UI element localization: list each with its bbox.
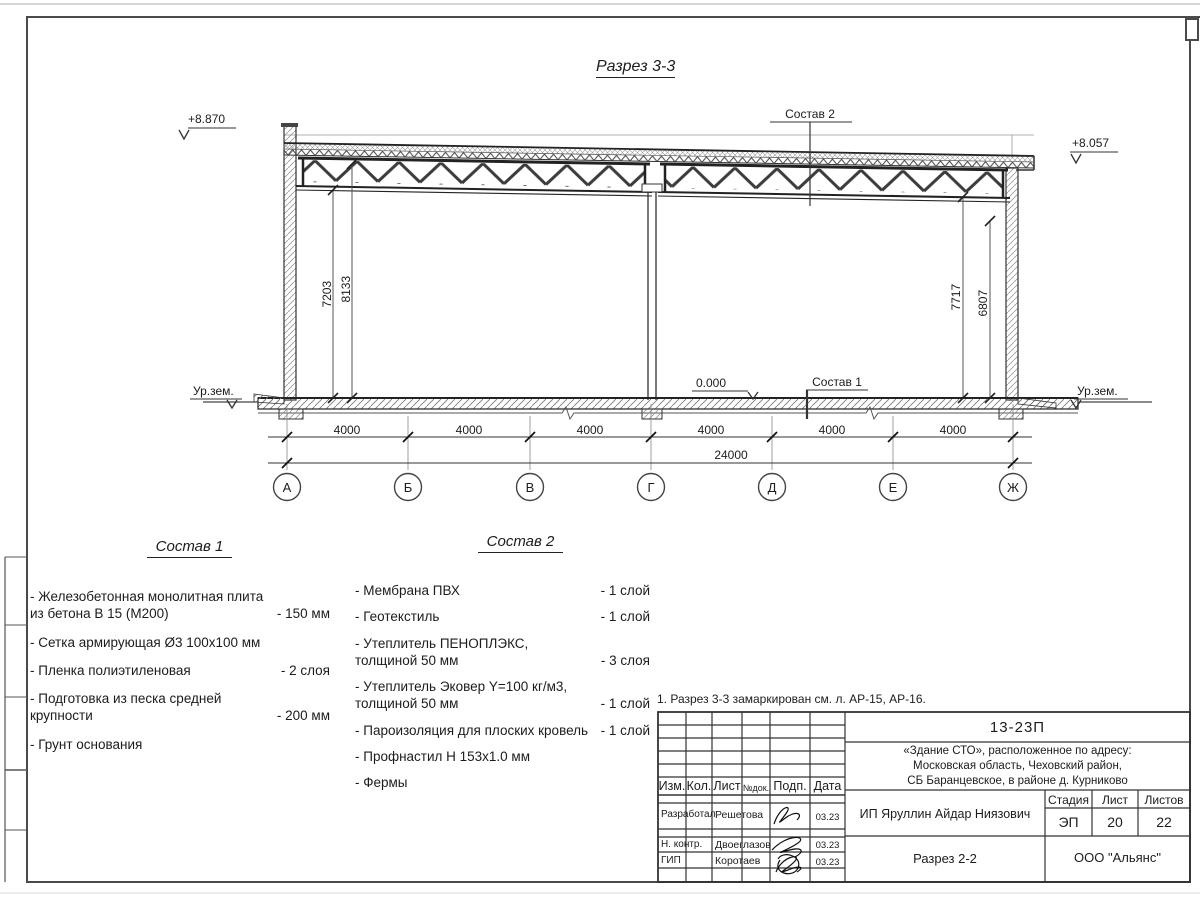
drawing-sheet: Разрез 3-3 +8.870 +8.057 0.000 Ур.зем. У… <box>0 0 1200 900</box>
tb-company: ООО "Альянс" <box>1045 850 1190 866</box>
elevation-left-label: +8.870 <box>188 112 225 126</box>
left-truss <box>296 158 652 196</box>
tb-sheets-total: 22 <box>1138 814 1190 831</box>
axis-label-e: Е <box>879 480 907 495</box>
list-item: - Геотекстиль- 1 слой <box>355 608 650 625</box>
tb-name-reshetova: Решетова <box>715 809 763 822</box>
sostav2-callout: Состав 2 <box>775 107 845 121</box>
list-item: - Подготовка из песка средней крупности-… <box>30 690 330 725</box>
page-title: Разрез 3-3 <box>596 57 675 78</box>
list-item: - Профнастил Н 153х1.0 мм <box>355 748 650 765</box>
tb-date-1: 03.23 <box>811 812 844 823</box>
right-truss <box>658 164 1010 202</box>
signatures <box>772 808 801 874</box>
middle-column <box>642 184 662 400</box>
sostav1-list: - Железобетонная монолитная плита из бет… <box>30 588 330 764</box>
list-item: - Пленка полиэтиленовая- 2 слоя <box>30 662 330 679</box>
bay-dim-1: 4000 <box>327 423 367 437</box>
tb-sheet-name: Разрез 2-2 <box>845 851 1045 867</box>
tb-stage-value: ЭП <box>1045 814 1092 831</box>
elevation-right-label: +8.057 <box>1072 136 1109 150</box>
axis-label-zh: Ж <box>999 480 1027 495</box>
list-item: - Утеплитель ПЕНОПЛЭКС, толщиной 50 мм- … <box>355 635 650 670</box>
vdim-6807: 6807 <box>976 283 990 323</box>
total-dim: 24000 <box>706 448 756 462</box>
tb-col-podp: Подп. <box>770 779 810 794</box>
bay-dim-6: 4000 <box>933 423 973 437</box>
floor-slab <box>203 394 1152 419</box>
axis-label-b: Б <box>394 480 422 495</box>
left-parapet-cap <box>281 123 298 127</box>
ground-level-left-label: Ур.зем. <box>193 384 234 398</box>
tb-sheet-no: 20 <box>1092 814 1138 831</box>
tb-col-doc: №док. <box>742 783 770 794</box>
list-item: - Железобетонная монолитная плита из бет… <box>30 588 330 623</box>
sostav2-list: - Мембрана ПВХ- 1 слой - Геотекстиль- 1 … <box>355 582 650 800</box>
tb-client: ИП Яруллин Айдар Ниязович <box>845 807 1045 822</box>
tb-col-date: Дата <box>810 779 845 794</box>
tb-name-dvoeglazov: Двоеглазов <box>715 839 771 852</box>
tb-col-list: Лист <box>712 779 742 794</box>
list-item: - Мембрана ПВХ- 1 слой <box>355 582 650 599</box>
sostav2-heading: Состав 2 <box>478 533 563 553</box>
tb-col-kol: Кол. <box>686 779 712 794</box>
elevation-zero-label: 0.000 <box>696 376 726 390</box>
tb-role-nkontr: Н. контр. <box>661 839 702 851</box>
tb-date-3: 03.23 <box>811 857 844 868</box>
tb-list-label: Лист <box>1092 793 1138 807</box>
left-wall <box>284 126 296 400</box>
list-item: - Фермы <box>355 774 650 791</box>
right-wall <box>1006 168 1018 400</box>
bay-dim-4: 4000 <box>691 423 731 437</box>
bay-dim-3: 4000 <box>570 423 610 437</box>
axis-label-v: В <box>516 480 544 495</box>
vdim-7203: 7203 <box>320 274 334 314</box>
list-item: - Пароизоляция для плоских кровель- 1 сл… <box>355 722 650 739</box>
sostav1-heading: Состав 1 <box>147 538 232 558</box>
axis-label-a: А <box>273 480 301 495</box>
sostav1-callout: Состав 1 <box>806 375 868 389</box>
bay-dim-2: 4000 <box>449 423 489 437</box>
axis-label-d: Д <box>758 480 786 495</box>
tb-name-korotaev: Коротаев <box>715 855 760 868</box>
sheet-note: 1. Разрез 3-3 замаркирован см. л. АР-15,… <box>657 692 926 706</box>
list-item: - Сетка армирующая Ø3 100х100 мм <box>30 634 330 651</box>
tb-project-address: «Здание СТО», расположенное по адресу: М… <box>845 744 1190 790</box>
vdim-7717: 7717 <box>949 277 963 317</box>
tb-col-izm: Изм. <box>658 779 686 794</box>
axis-label-g: Г <box>637 480 665 495</box>
list-item: - Утеплитель Эковер Y=100 кг/м3, толщино… <box>355 678 650 713</box>
tb-doc-number: 13-23П <box>845 719 1190 737</box>
tb-role-gip: ГИП <box>661 855 681 867</box>
tb-date-2: 03.23 <box>811 840 844 851</box>
vertical-dimension-lines <box>333 164 990 398</box>
tb-role-razrabotal: Разработал <box>661 809 715 821</box>
ground-level-right-label: Ур.зем. <box>1077 384 1118 398</box>
vdim-8133: 8133 <box>339 269 353 309</box>
list-item: - Грунт основания <box>30 736 330 753</box>
bay-dim-5: 4000 <box>812 423 852 437</box>
tb-listov-label: Листов <box>1138 793 1190 807</box>
tb-stage-label: Стадия <box>1045 793 1092 807</box>
